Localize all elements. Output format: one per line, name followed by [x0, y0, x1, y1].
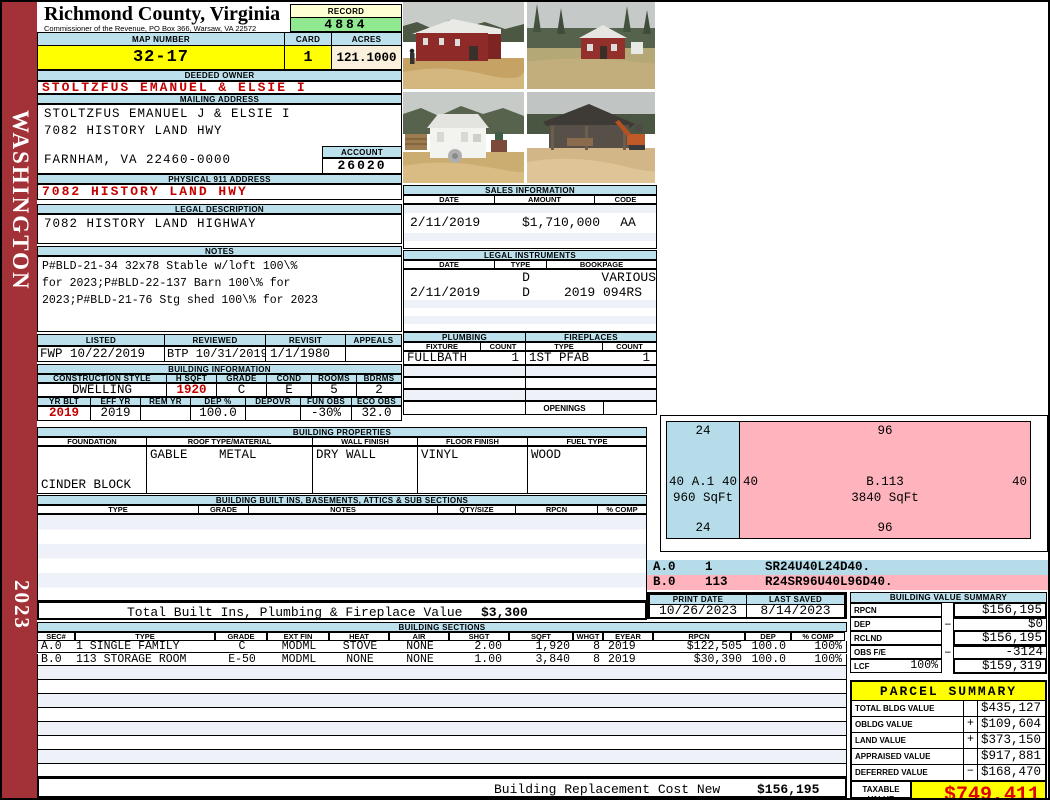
sales-rows: 2/11/2019 $1,710,000 AA [403, 204, 657, 249]
card-label: CARD [284, 32, 332, 46]
sales-information-title: SALES INFORMATION [403, 185, 657, 195]
bs-empty-row [37, 708, 847, 722]
fireplace-type-value: 1ST PFAB 1 [525, 351, 657, 365]
card-value: 1 [284, 45, 332, 70]
print-info-box: PRINT DATE LAST SAVED 10/26/2023 8/14/20… [647, 592, 847, 619]
bvs-rpcn-label: RPCN [850, 603, 942, 617]
sales-code-header: CODE [594, 195, 657, 204]
grade-value: C [216, 383, 267, 397]
li-1-bookpage: VARIOUS [552, 270, 656, 286]
openings-label: OPENINGS [525, 401, 604, 415]
ps-row-land: LAND VALUE + $373,150 [852, 733, 1045, 749]
ps-value: $168,470 [978, 765, 1045, 780]
roof-header: ROOF TYPE/MATERIAL [146, 437, 313, 446]
fireplace-empty-row [525, 377, 657, 389]
dep-pct-value: 100.0 [190, 406, 246, 421]
fireplace-empty-row [525, 389, 657, 401]
bvs-dep-label: DEP [850, 617, 942, 631]
plumbing-fixture-text: FULLBATH [404, 351, 467, 366]
bs-a-extfin: MODML [268, 641, 330, 652]
plumbing-count-text: 1 [511, 351, 525, 366]
ps-value: $109,604 [978, 717, 1045, 732]
li-row-2: 2/11/2019 D 2019 094RS [404, 285, 656, 300]
notes-line-2: for 2023;P#BLD-22-137 Barn 100\% for [42, 276, 290, 293]
li-type-header: TYPE [494, 260, 547, 269]
funobs-value: -30% [300, 406, 352, 421]
record-value: 4884 [290, 17, 402, 32]
bvs-rpcn-label-text: RPCN [854, 606, 877, 615]
bs-empty-row [37, 750, 847, 764]
sketch-a-left-dim: 40 [669, 475, 684, 490]
ps-label: TOTAL BLDG VALUE [852, 701, 964, 716]
sales-amount-header: AMOUNT [494, 195, 595, 204]
roof-value: GABLE METAL [146, 446, 313, 494]
legal-description-label: LEGAL DESCRIPTION [37, 204, 402, 214]
total-built-ins-box: Total Built Ins, Plumbing & Fireplace Va… [37, 601, 647, 620]
listed-value: FWP 10/22/2019 [37, 346, 165, 362]
bvs-dep-label-text: DEP [854, 620, 870, 629]
bvs-rclnd-value: $156,195 [953, 630, 1047, 646]
acres-label: ACRES [331, 32, 402, 46]
spec-a-code: SR24U40L24D40. [765, 560, 870, 575]
bs-a-grade: C [216, 641, 268, 652]
built-ins-notes-header: NOTES [248, 505, 438, 514]
effyr-header: EFF YR [90, 397, 141, 406]
bs-a-whgt: 8 [574, 641, 604, 652]
bs-a-dep: 100.0 [746, 641, 792, 652]
built-ins-rpcn-header: RPCN [515, 505, 598, 514]
built-ins-comp-header: % COMP [597, 505, 647, 514]
floor-finish-value: VINYL [417, 446, 528, 494]
parcel-summary-title: PARCEL SUMMARY [852, 682, 1045, 701]
sketch-b-left-dim: 40 [743, 475, 758, 490]
li-row-1: D VARIOUS [404, 270, 656, 285]
bs-a-sec: A.0 [38, 641, 76, 652]
li-bookpage-header: BOOKPAGE [546, 260, 657, 269]
effyr-value: 2019 [90, 406, 141, 421]
ps-label: APPRAISED VALUE [852, 749, 964, 764]
sketch-section-b: 96 40 B.113 40 3840 SqFt 96 [739, 421, 1031, 539]
funobs-header: FUN OBS [300, 397, 352, 406]
ecoobs-value: 32.0 [351, 406, 402, 421]
replacement-cost-label: Building Replacement Cost New [494, 782, 720, 798]
ps-op [964, 749, 978, 764]
bs-empty-row [37, 722, 847, 736]
plumbing-title: PLUMBING [403, 332, 526, 342]
listed-header: LISTED [37, 334, 165, 346]
spec-a-sec: A.0 [647, 560, 676, 575]
sketch-spec-b: B.0 113 R24SR96U40L96D40. [647, 575, 1048, 590]
bs-b-eyear: 2019 [604, 654, 654, 665]
built-ins-grade-header: GRADE [198, 505, 249, 514]
property-photo-3[interactable] [403, 92, 524, 183]
bs-b-whgt: 8 [574, 654, 604, 665]
bvs-lcf-value: $159,319 [953, 658, 1047, 674]
legal-instruments-title: LEGAL INSTRUMENTS [403, 250, 657, 260]
cond-value: E [266, 383, 312, 397]
bs-b-sqft: 3,840 [510, 654, 574, 665]
ps-value: $373,150 [978, 733, 1045, 748]
year-spine: WASHINGTON 2023 [2, 2, 37, 798]
plumbing-empty-row [403, 365, 526, 377]
bs-b-shgt: 1.00 [450, 654, 510, 665]
sketch-b-label: B.113 [866, 475, 904, 490]
reviewed-header: REVIEWED [164, 334, 266, 346]
bvs-dep-op: − [943, 618, 953, 635]
bvs-rpcn-value-text: $156,195 [982, 603, 1042, 618]
built-ins-title: BUILDING BUILT INS, BASEMENTS, ATTICS & … [37, 495, 647, 505]
spine-year-label: 2023 [9, 580, 34, 630]
spec-a-num: 1 [705, 560, 713, 575]
notes-line-3: 2023;P#BLD-21-76 Stg shed 100\% for 2023 [42, 293, 318, 310]
reviewed-value: BTP 10/31/2019 [164, 346, 266, 362]
bvs-rclnd-value-text: $156,195 [982, 631, 1042, 646]
spec-b-code: R24SR96U40L96D40. [765, 575, 893, 590]
remyr-header: REM YR [140, 397, 191, 406]
legal-instruments-rows: D VARIOUS 2/11/2019 D 2019 094RS [403, 269, 657, 332]
bs-empty-row [37, 680, 847, 694]
sketch-b-top-dim: 96 [740, 424, 1030, 439]
appeals-header: APPEALS [345, 334, 402, 346]
building-information-title: BUILDING INFORMATION [37, 364, 402, 374]
account-value: 26020 [322, 158, 402, 174]
fuel-type-header: FUEL TYPE [527, 437, 647, 446]
bs-b-extfin: MODML [268, 654, 330, 665]
foundation-line-1: CINDER BLOCK [41, 478, 131, 493]
ps-label: LAND VALUE [852, 733, 964, 748]
roof-type-value: GABLE [147, 447, 188, 463]
built-ins-empty-rows [37, 514, 647, 601]
legal-description-value: 7082 HISTORY LAND HIGHWAY [37, 214, 402, 244]
map-number-value: 32-17 [37, 45, 285, 70]
sketch-a-bottom-dim: 24 [667, 521, 739, 536]
revisit-header: REVISIT [265, 334, 346, 346]
building-sections-title: BUILDING SECTIONS [37, 622, 847, 632]
li-2-bookpage: 2019 094RS [552, 285, 656, 301]
bvs-obs-label-text: OBS F/E [854, 648, 886, 657]
bs-a-eyear: 2019 [604, 641, 654, 652]
physical-address-value: 7082 HISTORY LAND HWY [37, 184, 402, 200]
bs-a-sqft: 1,920 [510, 641, 574, 652]
taxable-label-line2: VALUE [868, 795, 895, 798]
print-date-value: 10/26/2023 [649, 604, 747, 618]
ps-label: DEFERRED VALUE [852, 765, 964, 780]
property-photo-1[interactable] [403, 2, 524, 89]
openings-value [603, 401, 657, 415]
ps-value: $917,881 [978, 749, 1045, 764]
bs-a-heat: STOVE [330, 641, 390, 652]
ps-row-obldg: OBLDG VALUE + $109,604 [852, 717, 1045, 733]
sales-date-value: 2/11/2019 [404, 215, 500, 231]
bvs-lcf-pct: 100% [910, 658, 938, 675]
li-1-type: D [500, 270, 552, 286]
bs-b-comp: 100% [792, 654, 846, 665]
wall-finish-value: DRY WALL [312, 446, 418, 494]
roof-material-value: METAL [219, 448, 257, 463]
taxable-label-line1: TAXABLE [862, 785, 899, 795]
ps-row-taxable: TAXABLE VALUE $749,411 [852, 782, 1045, 798]
ps-row-appraised: APPRAISED VALUE $917,881 [852, 749, 1045, 765]
property-photo-2[interactable] [527, 2, 655, 89]
hsqft-value: 1920 [166, 383, 217, 397]
built-ins-type-header: TYPE [37, 505, 199, 514]
fuel-type-value: WOOD [527, 446, 647, 494]
sales-date-header: DATE [403, 195, 495, 204]
bs-b-grade: E-50 [216, 654, 268, 665]
bs-empty-row [37, 694, 847, 708]
taxable-value-label: TAXABLE VALUE [852, 782, 912, 798]
bs-empty-row [37, 764, 847, 777]
rooms-value: 5 [311, 383, 357, 397]
spec-b-sec: B.0 [647, 575, 676, 590]
notes-label: NOTES [37, 246, 402, 256]
dep-pct-header: DEP % [190, 397, 246, 406]
li-2-type: D [500, 285, 552, 301]
foundation-value: CINDER BLOCK CRAWL [37, 446, 147, 494]
bs-empty-row [37, 736, 847, 750]
property-record-card: WASHINGTON 2023 Richmond County, Virgini… [2, 2, 1048, 798]
taxable-value: $749,411 [912, 782, 1045, 798]
ps-op: + [964, 733, 978, 748]
account-label: ACCOUNT [322, 146, 402, 158]
sketch-section-a: 24 40 A.1 40 960 SqFt 24 [666, 421, 740, 539]
li-2-date: 2/11/2019 [404, 285, 500, 301]
ps-row-total-bldg: TOTAL BLDG VALUE $435,127 [852, 701, 1045, 717]
built-ins-qty-header: QTY/SIZE [437, 505, 516, 514]
bs-b-heat: NONE [330, 654, 390, 665]
plumbing-empty-row [403, 377, 526, 389]
bs-b-type: 113 STORAGE ROOM [76, 654, 216, 665]
bs-empty-row [37, 666, 847, 680]
sketch-spec-a: A.0 1 SR24U40L24D40. [647, 560, 1048, 575]
sketch-a-right-dim: 40 [722, 475, 737, 490]
bs-a-type: 1 SINGLE FAMILY [76, 641, 216, 652]
bdrms-value: 2 [356, 383, 402, 397]
building-section-row-a: A.0 1 SINGLE FAMILY C MODML STOVE NONE 2… [37, 641, 847, 653]
depovr-header: DEPOVR [245, 397, 301, 406]
yrblt-value: 2019 [37, 406, 91, 421]
yrblt-header: YR BLT [37, 397, 91, 406]
bvs-rclnd-label-text: RCLND [854, 634, 882, 643]
ps-op: + [964, 717, 978, 732]
appeals-value [345, 346, 402, 362]
replacement-cost-value: $156,195 [757, 782, 819, 798]
bs-a-air: NONE [390, 641, 450, 652]
construction-style-value: DWELLING [37, 383, 167, 397]
bvs-lcf-label-text: LCF [854, 662, 870, 671]
revisit-value: 1/1/1980 [265, 346, 346, 362]
remyr-value [140, 406, 191, 421]
li-date-header: DATE [403, 260, 495, 269]
sketch-b-bottom-dim: 96 [740, 521, 1030, 536]
bs-b-sec: B.0 [38, 654, 76, 665]
bvs-rpcn-value: $156,195 [953, 602, 1047, 618]
bs-a-rpcn: $122,505 [654, 641, 746, 652]
bs-b-rpcn: $30,390 [654, 654, 746, 665]
ps-op [964, 701, 978, 716]
bvs-lcf-value-text: $159,319 [982, 659, 1042, 674]
sketch-a-sqft: 960 SqFt [667, 491, 739, 506]
bvs-lcf-label: LCF 100% [850, 659, 942, 673]
mailing-line-3: FARNHAM, VA 22460-0000 [44, 153, 231, 168]
fireplaces-title: FIREPLACES [525, 332, 657, 342]
bs-b-dep: 100.0 [746, 654, 792, 665]
building-sketch: 24 40 A.1 40 960 SqFt 24 96 40 B.113 40 … [660, 415, 1048, 552]
county-title: Richmond County, Virginia [44, 3, 304, 26]
bs-a-shgt: 2.00 [450, 641, 510, 652]
physical-address-label: PHYSICAL 911 ADDRESS [37, 174, 402, 184]
bs-b-air: NONE [390, 654, 450, 665]
map-number-label: MAP NUMBER [37, 32, 285, 46]
parcel-summary: PARCEL SUMMARY TOTAL BLDG VALUE $435,127… [850, 680, 1047, 798]
notes-line-1: P#BLD-21-34 32x78 Stable w/loft 100\% [42, 259, 297, 276]
property-photo-4[interactable] [527, 92, 655, 183]
building-section-row-b: B.0 113 STORAGE ROOM E-50 MODML NONE NON… [37, 654, 847, 666]
depovr-value [245, 406, 301, 421]
plumbing-empty-row [403, 389, 526, 401]
deeded-owner-value: STOLTZFUS EMANUEL & ELSIE I [37, 81, 402, 94]
sketch-a-top-dim: 24 [667, 424, 739, 439]
building-properties-title: BUILDING PROPERTIES [37, 427, 647, 437]
replacement-cost-box: Building Replacement Cost New $156,195 [37, 777, 847, 798]
spine-state-label: WASHINGTON [7, 110, 33, 291]
total-built-ins-value: $3,300 [481, 605, 528, 621]
plumbing-empty-row [403, 401, 526, 415]
ecoobs-header: ECO OBS [351, 397, 402, 406]
sketch-a-label: A.1 [692, 475, 715, 490]
spec-b-num: 113 [705, 575, 728, 590]
total-built-ins-label: Total Built Ins, Plumbing & Fireplace Va… [127, 605, 462, 621]
fireplace-type-text: 1ST PFAB [526, 351, 589, 366]
plumbing-fixture-value: FULLBATH 1 [403, 351, 526, 365]
sales-amount-value: $1,710,000 [500, 215, 600, 231]
sketch-b-right-dim: 40 [1012, 475, 1027, 490]
mailing-address-label: MAILING ADDRESS [37, 94, 402, 104]
ps-row-deferred: DEFERRED VALUE − $168,470 [852, 765, 1045, 782]
foundation-header: FOUNDATION [37, 437, 147, 446]
ps-value: $435,127 [978, 701, 1045, 716]
ps-label: OBLDG VALUE [852, 717, 964, 732]
acres-value: 121.1000 [331, 45, 402, 70]
bs-a-comp: 100% [792, 641, 846, 652]
sales-row: 2/11/2019 $1,710,000 AA [404, 213, 656, 233]
fireplace-empty-row [525, 365, 657, 377]
ps-op: − [964, 765, 978, 780]
last-saved-value: 8/14/2023 [746, 604, 845, 618]
bvs-obs-op: − [943, 646, 953, 663]
wall-finish-header: WALL FINISH [312, 437, 418, 446]
mailing-line-1: STOLTZFUS EMANUEL J & ELSIE I [44, 107, 291, 122]
sales-code-value: AA [600, 215, 656, 231]
mailing-line-2: 7082 HISTORY LAND HWY [44, 124, 223, 139]
sketch-b-sqft: 3840 SqFt [740, 491, 1030, 506]
floor-finish-header: FLOOR FINISH [417, 437, 528, 446]
fireplace-count-text: 1 [642, 351, 656, 366]
bvs-rclnd-label: RCLND [850, 631, 942, 645]
